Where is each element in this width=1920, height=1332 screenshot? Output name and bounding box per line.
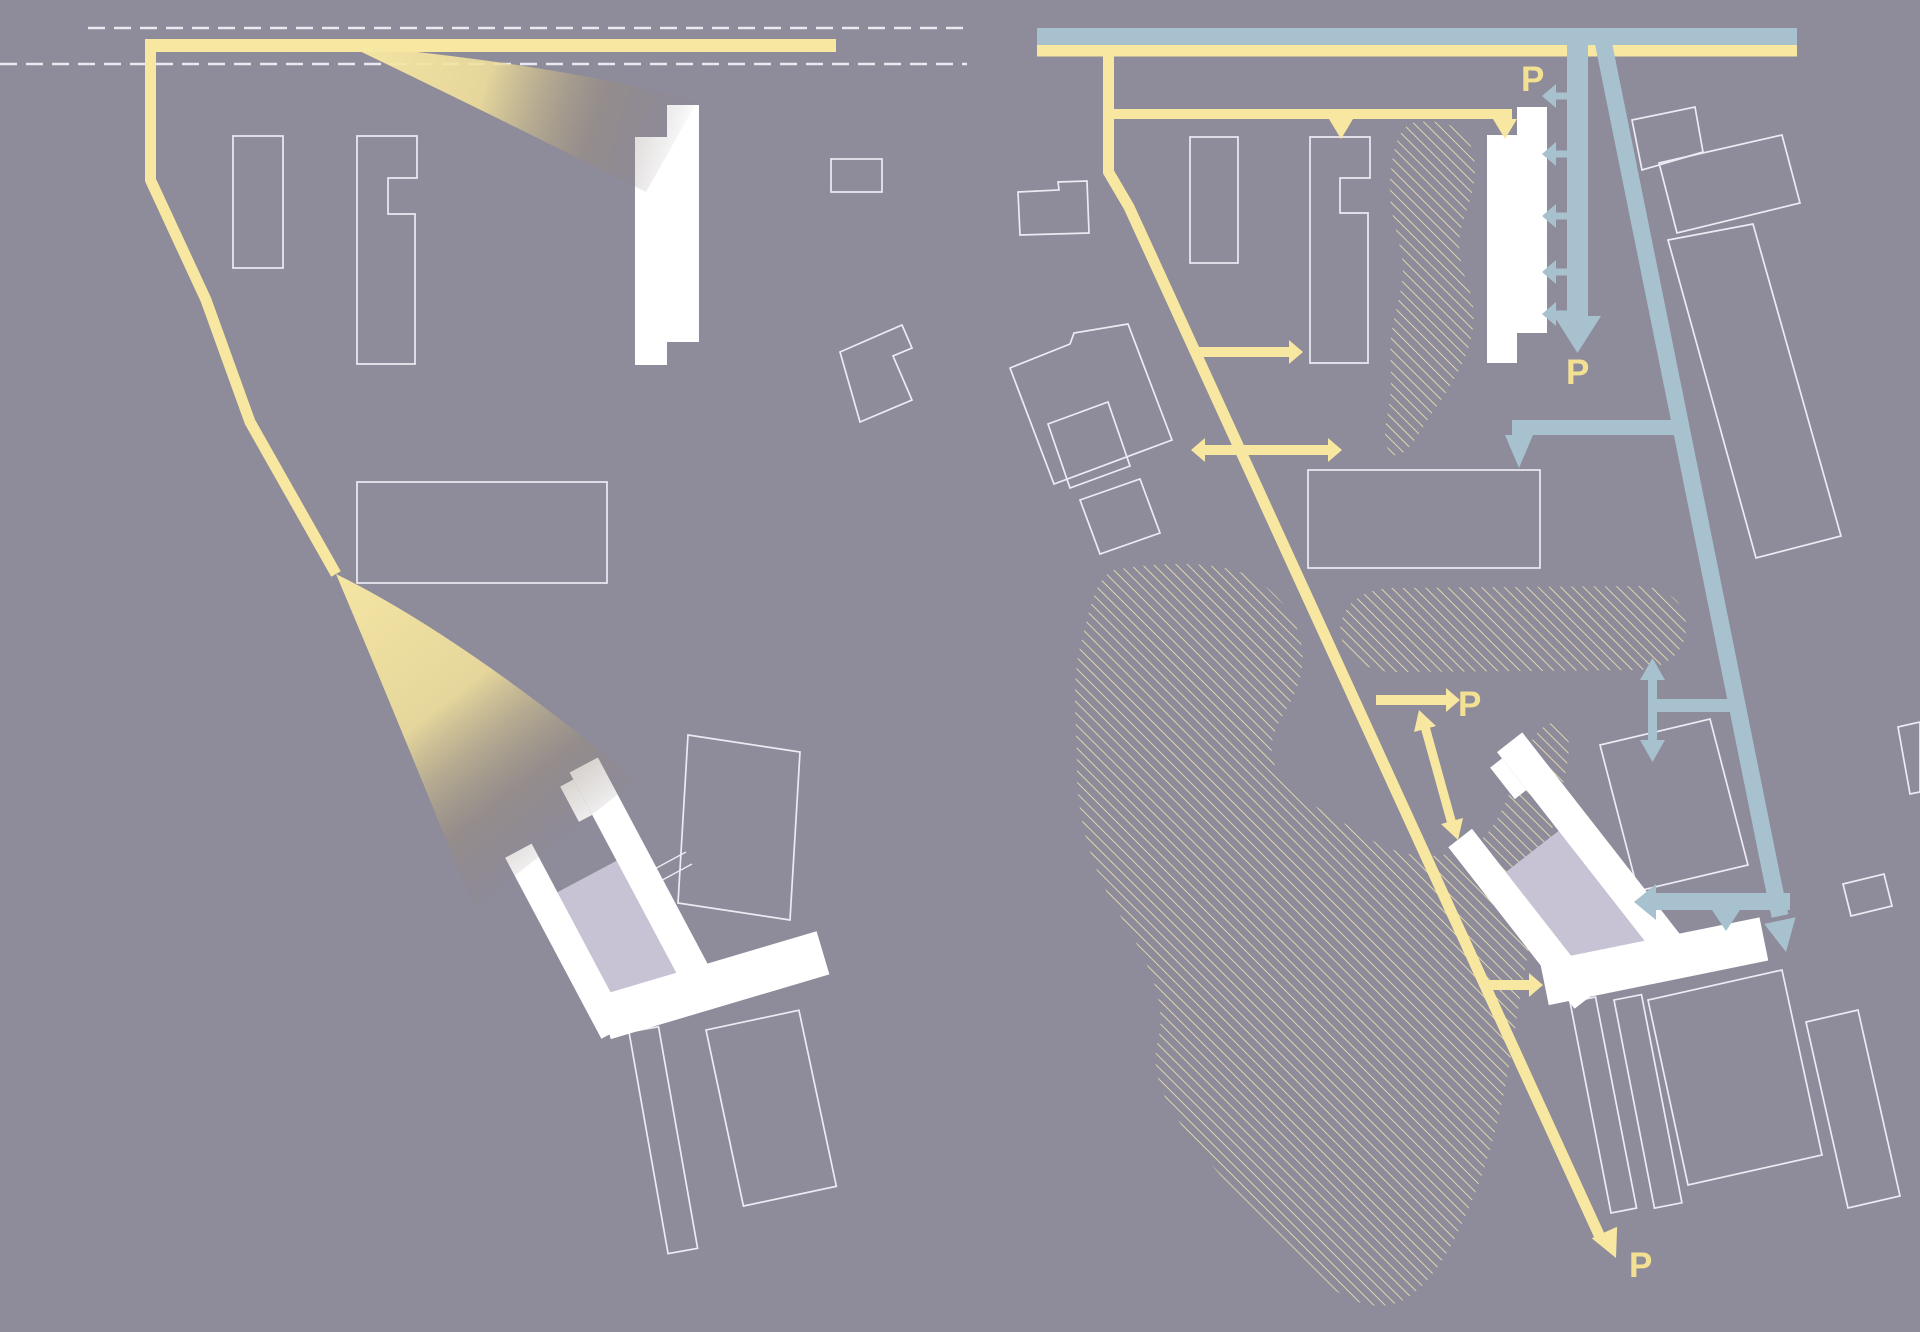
diagram-stage: P P P P bbox=[0, 0, 1920, 1332]
yellow-street-band bbox=[1037, 45, 1797, 57]
yellow-branch-north bbox=[1104, 109, 1512, 119]
yellow-branch-cluster bbox=[1481, 980, 1531, 990]
site-boundary-top-bar bbox=[145, 39, 836, 52]
blue-branch-upper bbox=[1512, 420, 1676, 435]
blue-street-band bbox=[1037, 28, 1797, 45]
parking-label-east: P bbox=[1566, 353, 1589, 392]
hatch-area-band bbox=[1340, 586, 1686, 672]
blue-branch-mid bbox=[1652, 699, 1732, 712]
yellow-branch-east bbox=[1194, 347, 1289, 357]
blue-double-arrow-shaft bbox=[1648, 672, 1657, 740]
site-diagram-svg: P P P P bbox=[0, 0, 1920, 1332]
blue-vertical-arrow-stem bbox=[1567, 30, 1588, 318]
parking-label-north: P bbox=[1521, 60, 1544, 99]
yellow-branch-parking bbox=[1376, 695, 1446, 705]
white-building-north-b-right bbox=[1517, 107, 1547, 333]
parking-label-south: P bbox=[1629, 1246, 1652, 1285]
parking-label-mid: P bbox=[1458, 685, 1481, 724]
blue-branch-lower bbox=[1656, 893, 1790, 910]
yellow-double-arrow-shaft bbox=[1205, 445, 1328, 455]
white-building-north-a-right bbox=[1487, 135, 1517, 363]
